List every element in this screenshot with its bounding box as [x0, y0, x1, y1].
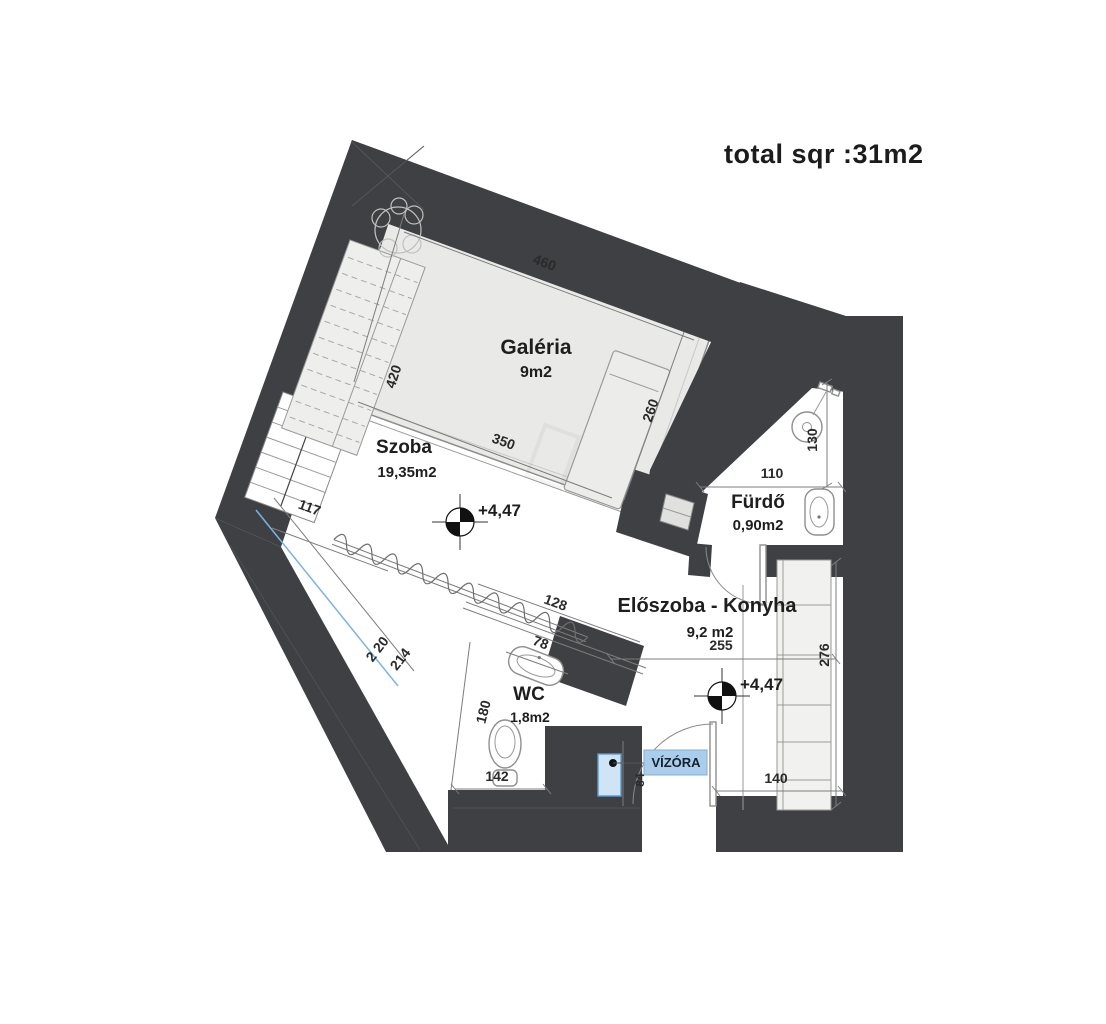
wall-lower-left: [215, 518, 452, 852]
elevation-value-szoba: +4,47: [478, 501, 521, 520]
room-label-furdo: Fürdő: [731, 492, 785, 513]
dim-entry-width: 140: [764, 770, 788, 786]
furdo-sink: [805, 489, 834, 535]
wall-entry-left-chunk: [545, 726, 642, 852]
wall-furdo-door-left: [688, 543, 712, 577]
wall-right: [843, 316, 903, 852]
room-label-eloszoba: Előszoba - Konyha: [618, 595, 798, 617]
wall-hatch-line: [230, 545, 420, 850]
wc-left-wall-line: [451, 642, 470, 790]
elevation-value-eloszoba: +4,47: [740, 675, 783, 694]
dim-wc-bottom: 142: [485, 768, 509, 784]
dim-wc-left-wall: 180: [473, 698, 494, 725]
vizora-label: VÍZÓRA: [651, 755, 701, 770]
dim-furdo-height: 130: [804, 428, 820, 452]
dim-eloszoba-height: 276: [816, 643, 832, 667]
room-area-eloszoba: 9,2 m2: [687, 624, 734, 641]
room-area-wc: 1,8m2: [510, 709, 550, 725]
room-area-szoba: 19,35m2: [377, 464, 436, 481]
dim-szoba-wc-wall: 128: [542, 591, 570, 614]
curtain-wave: [331, 532, 591, 644]
room-label-szoba: Szoba: [376, 437, 432, 458]
dim-diag-b: 214: [387, 645, 414, 673]
room-label-galeria: Galéria: [500, 336, 572, 359]
room-area-furdo: 0,90m2: [733, 517, 784, 534]
room-area-galeria: 9m2: [520, 364, 552, 381]
dim-water-meter: 84: [633, 773, 647, 787]
page-title: total sqr :31m2: [724, 139, 924, 169]
dim-furdo-width: 110: [761, 465, 784, 481]
floor-plan-canvas: VÍZÓRA +4,47 +4,47: [0, 0, 1106, 1024]
floor-plan-drawing: VÍZÓRA +4,47 +4,47: [0, 0, 1106, 1024]
room-label-wc: WC: [513, 684, 545, 705]
